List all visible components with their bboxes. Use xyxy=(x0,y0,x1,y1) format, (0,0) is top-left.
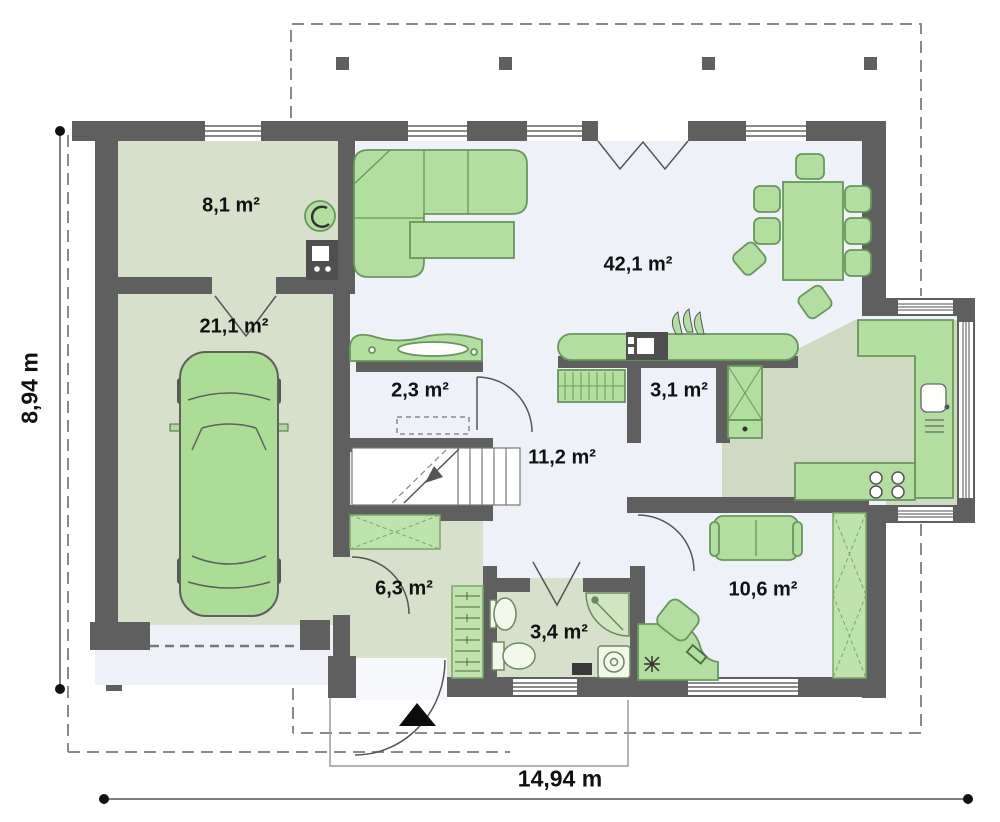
wall-west xyxy=(95,121,118,650)
bedroom-wardrobe xyxy=(833,513,866,678)
bath-sink xyxy=(494,598,516,630)
room-area-label-pantry: 3,1 m² xyxy=(650,380,708,403)
bath-mat xyxy=(572,663,592,675)
room-area-label-bedroom: 10,6 m² xyxy=(729,579,798,602)
toilet-tank xyxy=(492,642,504,670)
floor-plan-page: 8,1 m² 21,1 m² 42,1 m² 2,3 m² 3,1 m² 11,… xyxy=(0,0,1000,822)
wall-utility-living xyxy=(338,141,355,294)
tv-screen xyxy=(398,342,468,356)
wall-east-dining xyxy=(862,121,886,312)
door-opening-garage-hall xyxy=(333,557,350,615)
wall-pantry-left xyxy=(627,360,641,443)
dimension-line-width xyxy=(99,794,973,804)
window-living-2 xyxy=(527,121,582,141)
bedroom-sofa xyxy=(710,516,802,560)
dining-chair xyxy=(796,154,824,179)
dining-chair xyxy=(754,186,780,212)
decor-grass xyxy=(672,309,704,334)
sideboard xyxy=(558,334,798,360)
entry-recess xyxy=(356,658,447,700)
toilet-bowl xyxy=(503,643,535,669)
wall-garage-hall-b xyxy=(333,615,350,658)
hall-dresser xyxy=(558,370,625,402)
wall-garage-hall-a xyxy=(333,277,350,557)
room-area-label-garage: 21,1 m² xyxy=(200,316,269,339)
dimension-label-width: 14,94 m xyxy=(518,766,602,793)
floor-plan-drawing xyxy=(0,0,1000,822)
dining-chair xyxy=(754,218,780,244)
fridge xyxy=(728,366,762,438)
wall-utility-garage-a xyxy=(118,277,212,294)
window-utility xyxy=(205,121,261,141)
car-body xyxy=(180,352,278,616)
dining-chair xyxy=(845,218,871,244)
utility-equipment xyxy=(305,201,338,280)
wall-garage-front xyxy=(90,622,150,650)
garage-car xyxy=(170,352,288,616)
coffee-table xyxy=(410,222,514,258)
window-kitchen-top xyxy=(898,300,953,314)
window-bathroom xyxy=(513,679,577,695)
window-living-1 xyxy=(408,121,467,141)
dining-chair xyxy=(845,186,871,212)
room-area-label-hall: 11,2 m² xyxy=(528,447,596,470)
room-area-label-bathroom: 3,4 m² xyxy=(530,622,588,645)
room-area-label-living: 42,1 m² xyxy=(604,254,673,277)
wall-entry-block xyxy=(328,656,356,698)
window-kitchen-right xyxy=(959,322,973,498)
room-area-label-closet: 2,3 m² xyxy=(391,380,449,403)
coat-rack xyxy=(452,586,483,678)
washing-machine xyxy=(598,646,630,678)
understairs-wardrobe xyxy=(350,515,440,549)
dining-chair xyxy=(845,250,871,276)
dimension-line-depth xyxy=(55,126,65,694)
stairs xyxy=(352,448,520,505)
room-area-label-entry: 6,3 m² xyxy=(375,578,433,601)
entry-arrow xyxy=(399,703,436,726)
dining-table xyxy=(783,182,843,280)
window-bedroom xyxy=(688,679,798,695)
room-area-label-utility: 8,1 m² xyxy=(202,195,260,218)
window-kitchen-bottom xyxy=(898,507,953,521)
dimension-label-depth: 8,94 m xyxy=(17,352,44,424)
wall-bath-top-a xyxy=(497,578,530,592)
wall-porch-pillar xyxy=(300,620,330,650)
window-dining xyxy=(746,121,806,141)
desk-plant xyxy=(644,656,660,672)
